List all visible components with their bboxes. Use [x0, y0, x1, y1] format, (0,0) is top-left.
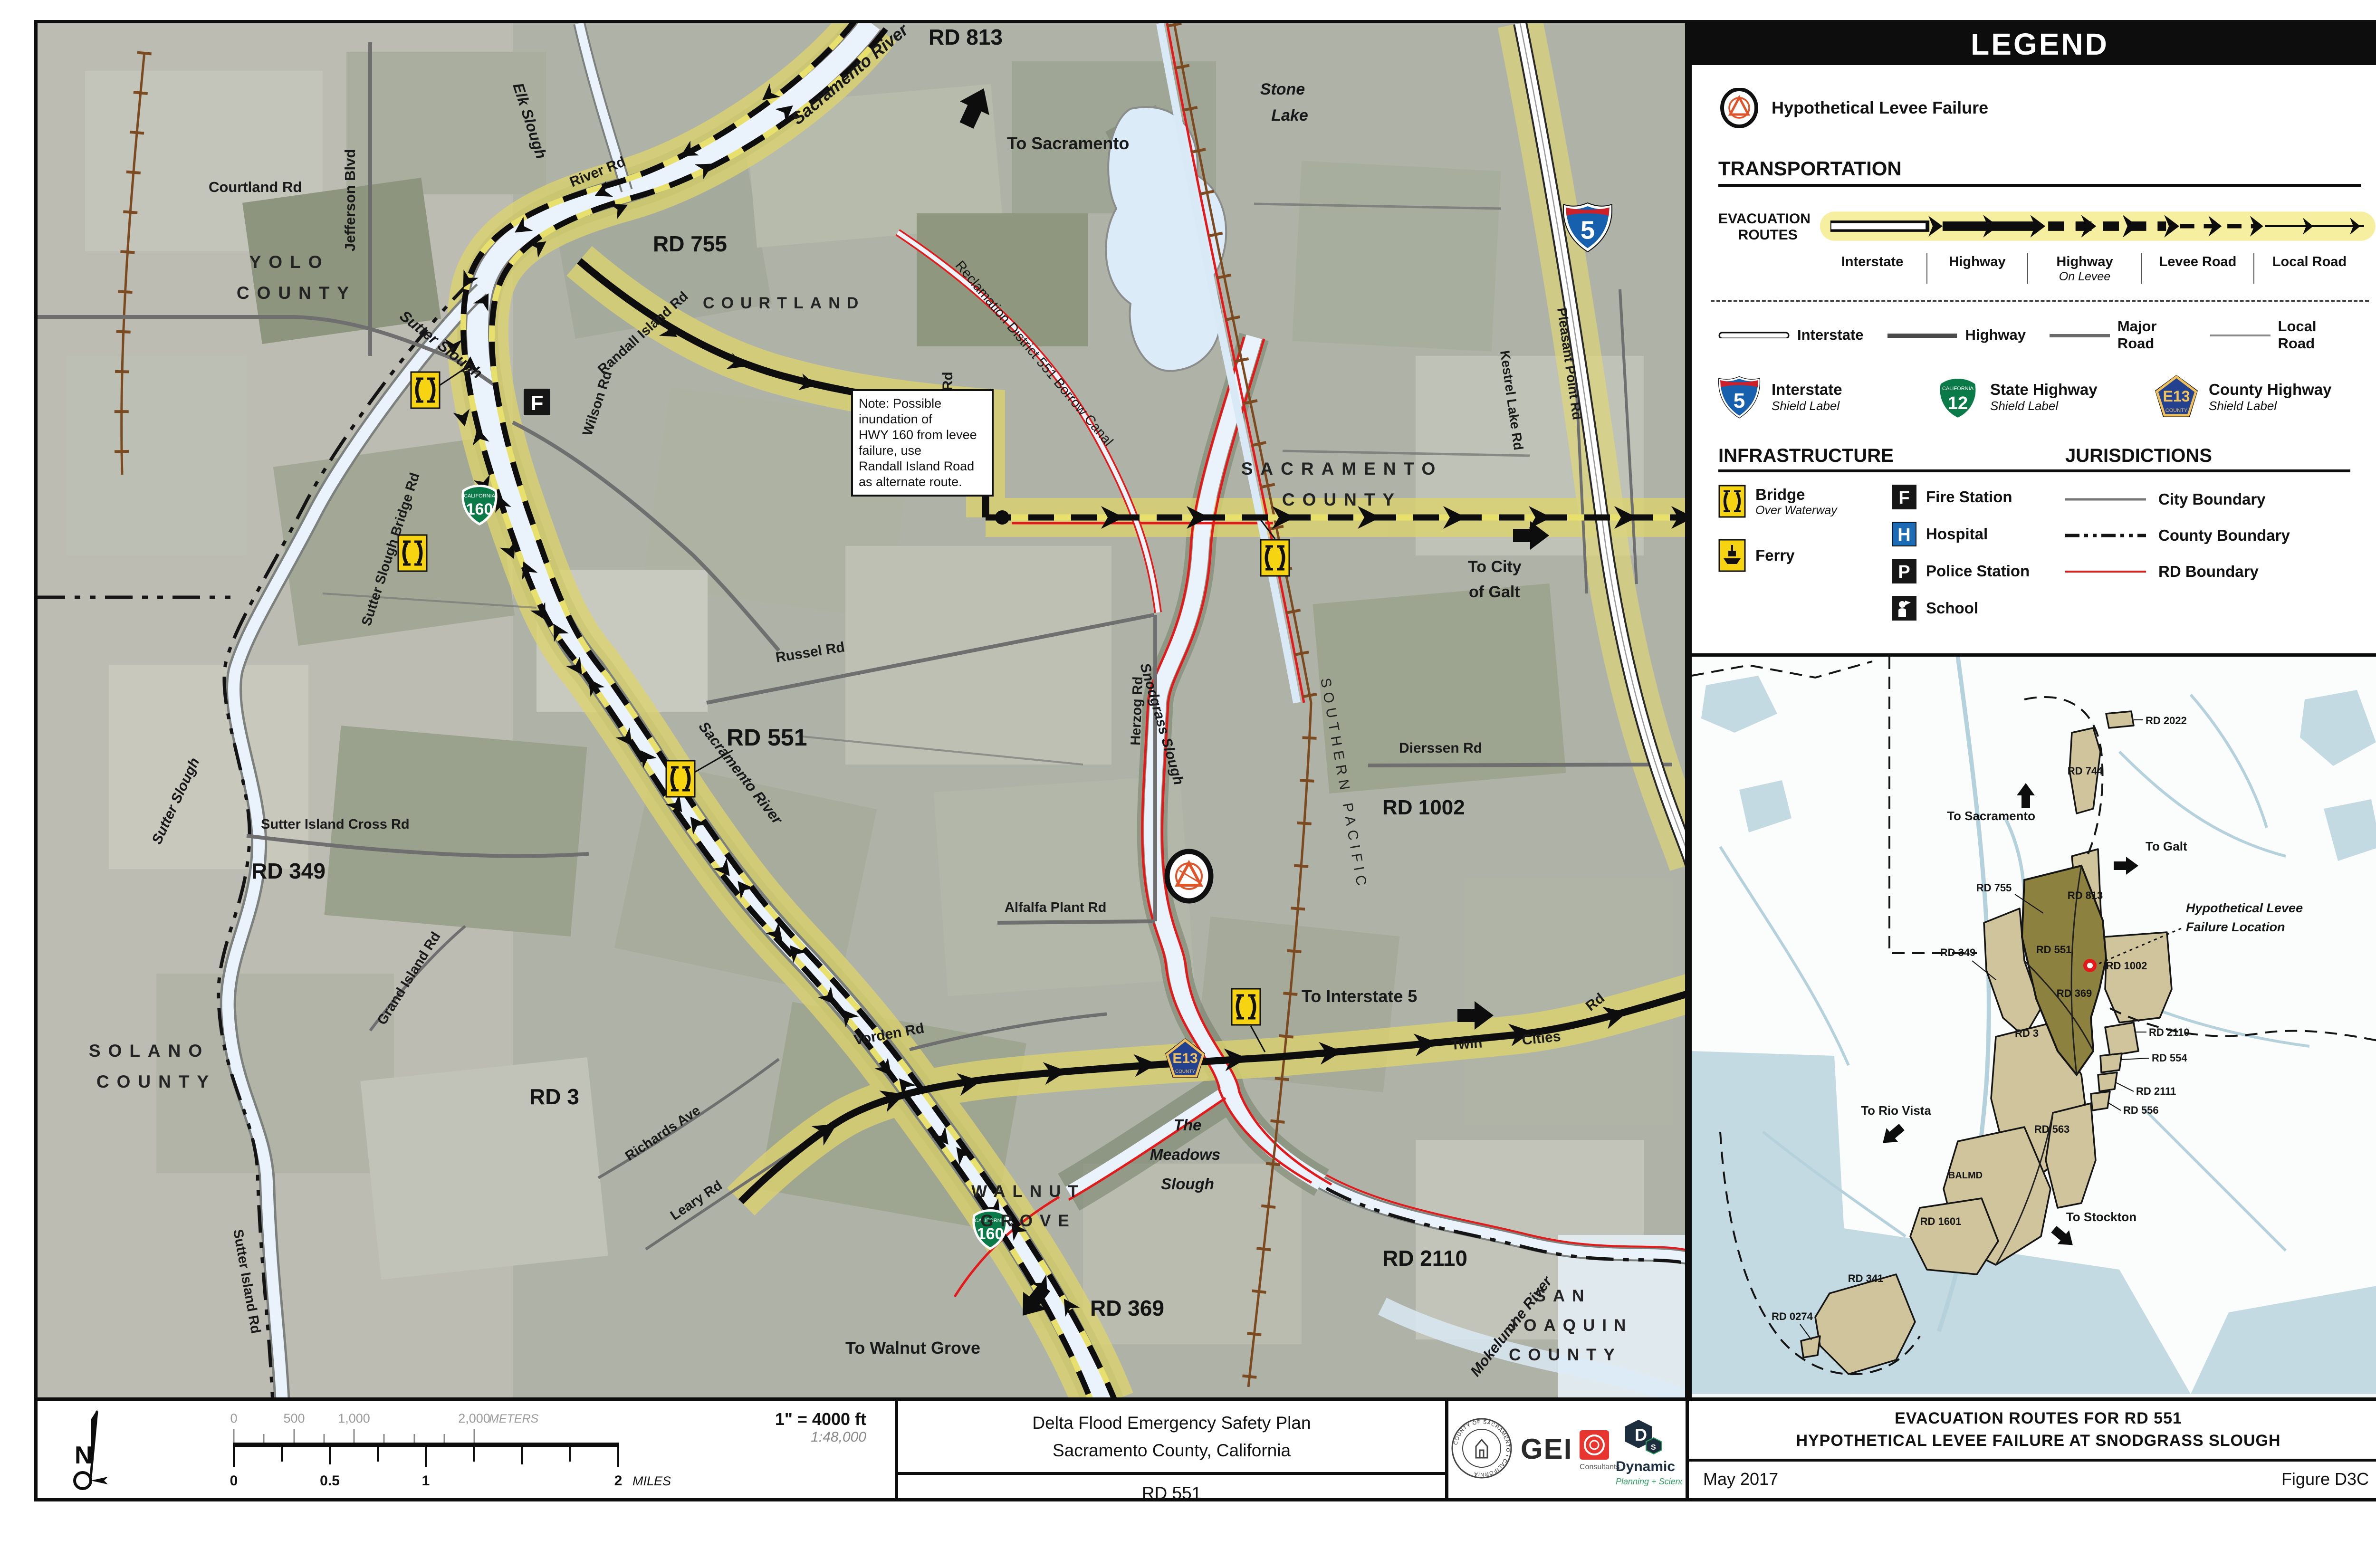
- svg-text:CALIFORNIA: CALIFORNIA: [464, 493, 496, 499]
- svg-text:RD 349: RD 349: [1940, 947, 1976, 958]
- fire-station-icon: F: [1892, 485, 1916, 509]
- svg-text:1: 1: [422, 1473, 430, 1489]
- bridge-icon: [1718, 485, 1746, 518]
- svg-text:RD 341: RD 341: [1848, 1272, 1884, 1284]
- svg-text:COUNTY: COUNTY: [1175, 1069, 1196, 1074]
- figure-title-line2: HYPOTHETICAL LEVEE FAILURE AT SNODGRASS …: [1689, 1432, 2376, 1450]
- label-courtland-town: COURTLAND: [703, 294, 865, 312]
- inset-rd-2022-poly: [2106, 711, 2134, 728]
- svg-text:COUNTY: COUNTY: [1509, 1346, 1622, 1364]
- label-courtland-rd: Courtland Rd: [209, 179, 302, 195]
- highway-line-sample: [1887, 332, 1958, 338]
- label-to-interstate-5: To Interstate 5: [1302, 986, 1417, 1006]
- svg-text:COUNTY OF SACRAMENTO • CALIF: COUNTY OF SACRAMENTO • CALIFORNIA: [1453, 1419, 1511, 1477]
- svg-text:To Stockton: To Stockton: [2066, 1210, 2136, 1224]
- footer-figure-panel: EVACUATION ROUTES FOR RD 551 HYPOTHETICA…: [1689, 1401, 2376, 1501]
- svg-text:F: F: [1898, 488, 1909, 508]
- svg-text:MILES: MILES: [632, 1474, 671, 1488]
- ferry-icon: [1718, 539, 1746, 572]
- footer: N 0 500 1,000 2,000 METERS: [34, 1401, 2376, 1501]
- interstate-shield-icon: 5: [1715, 373, 1763, 421]
- svg-text:RD 2110: RD 2110: [2149, 1026, 2190, 1038]
- svg-text:To Sacramento: To Sacramento: [1947, 809, 2035, 823]
- legend-evac-label: EVACUATION ROUTES: [1718, 211, 1817, 244]
- svg-text:RD 1002: RD 1002: [2106, 960, 2147, 972]
- figure-title-line1: EVACUATION ROUTES FOR RD 551: [1689, 1409, 2376, 1428]
- svg-text:GEI: GEI: [1521, 1433, 1572, 1465]
- legend-failure-label: Hypothetical Levee Failure: [1772, 98, 1988, 118]
- main-map-canvas: F 5: [38, 23, 1688, 1401]
- svg-text:P: P: [1898, 562, 1910, 582]
- figure-number: Figure D3C: [2281, 1469, 2369, 1489]
- svg-text:12: 12: [1948, 393, 1968, 413]
- svg-text:RD 369: RD 369: [2057, 987, 2092, 999]
- label-rd-755: RD 755: [653, 231, 727, 256]
- svg-text:0.5: 0.5: [320, 1473, 340, 1489]
- svg-text:of Galt: of Galt: [1469, 583, 1520, 601]
- svg-text:2: 2: [614, 1473, 623, 1489]
- label-san-joaquin-county: SAN: [1535, 1287, 1591, 1305]
- svg-text:E13: E13: [2163, 388, 2190, 405]
- svg-text:RD 755: RD 755: [1976, 882, 2012, 894]
- svg-text:COUNTY: COUNTY: [237, 283, 356, 303]
- inset-canvas: RD 2022 RD 744 To Sacramento To Galt RD …: [1692, 657, 2376, 1394]
- gei-logo: GEI Consultants: [1521, 1430, 1620, 1471]
- label-rd-1002: RD 1002: [1382, 796, 1465, 819]
- svg-text:RD 0274: RD 0274: [1772, 1310, 1813, 1322]
- label-to-sacramento: To Sacramento: [1007, 134, 1129, 153]
- levee-failure-icon: [1719, 88, 1759, 128]
- footer-scale-panel: N 0 500 1,000 2,000 METERS: [34, 1401, 898, 1501]
- label-dierssen-rd: Dierssen Rd: [1399, 740, 1482, 756]
- label-rd-3: RD 3: [529, 1084, 579, 1109]
- svg-text:N: N: [75, 1442, 93, 1469]
- label-walnut-grove: WALNUT: [971, 1182, 1085, 1201]
- label-to-walnut-grove: To Walnut Grove: [845, 1338, 980, 1358]
- label-meadows-slough: The: [1174, 1116, 1202, 1134]
- svg-text:RD 3: RD 3: [2015, 1027, 2039, 1039]
- svg-text:Meadows: Meadows: [1150, 1146, 1221, 1163]
- label-to-city-of-galt: To City: [1468, 558, 1522, 576]
- svg-text:BALMD: BALMD: [1948, 1170, 1983, 1181]
- label-twin-cities-rd: Twin: [1450, 1035, 1483, 1053]
- svg-text:E13: E13: [1172, 1051, 1198, 1066]
- sacramento-county-seal: COUNTY OF SACRAMENTO • CALIFORNIA: [1452, 1419, 1511, 1478]
- svg-text:RD 2111: RD 2111: [2136, 1085, 2176, 1097]
- svg-text:COUNTY: COUNTY: [96, 1072, 216, 1091]
- levee-failure-marker: [1167, 851, 1211, 901]
- svg-text:Consultants: Consultants: [1580, 1463, 1620, 1471]
- legend-infrastructure: INFRASTRUCTURE Bridge: [1718, 445, 2065, 621]
- legend-shields: 5 Interstate Shield Label CALIFORNIA 12 …: [1715, 373, 2376, 421]
- label-rd-369: RD 369: [1090, 1296, 1164, 1320]
- svg-text:500: 500: [283, 1411, 305, 1425]
- svg-text:Lake: Lake: [1271, 106, 1308, 124]
- north-arrow: N: [75, 1409, 108, 1489]
- legend-divider: [1711, 300, 2369, 302]
- scale-graphics: N 0 500 1,000 2,000 METERS: [38, 1401, 895, 1495]
- label-sacramento-county: SACRAMENTO: [1241, 459, 1443, 478]
- legend-evac-sublabels: Interstate Highway HighwayOn Levee Levee…: [1818, 253, 2365, 284]
- map-note: Note: Possible inundation of HWY 160 fro…: [851, 389, 994, 497]
- svg-text:GROVE: GROVE: [980, 1212, 1076, 1230]
- svg-text:METERS: METERS: [489, 1412, 539, 1425]
- scale-ratio: 1" = 4000 ft 1:48,000: [775, 1409, 866, 1445]
- bridge-icon: [398, 535, 427, 571]
- label-stone-lake: Stone: [1260, 80, 1305, 98]
- fire-station-icon: F: [524, 389, 550, 415]
- svg-text:RD 1601: RD 1601: [1920, 1215, 1962, 1227]
- svg-text:Planning + Science: Planning + Science: [1616, 1477, 1682, 1486]
- dynamic-logo: D S Dynamic Planning + Science: [1616, 1420, 1682, 1486]
- svg-text:COUNTY: COUNTY: [1282, 490, 1402, 509]
- svg-text:RD 744: RD 744: [2068, 765, 2103, 777]
- svg-text:160: 160: [466, 500, 493, 518]
- right-panel: LEGEND Hypothetical Levee Failure TRANSP…: [1688, 20, 2376, 1401]
- legend: LEGEND Hypothetical Levee Failure TRANSP…: [1692, 23, 2376, 657]
- label-rd-813: RD 813: [929, 25, 1003, 49]
- plan-subtitle: Sacramento County, California: [898, 1441, 1445, 1461]
- legend-jurisdictions: JURISDICTIONS City Boundary County Bound…: [2065, 445, 2350, 621]
- label-sutter-island-cross-rd: Sutter Island Cross Rd: [261, 817, 410, 832]
- svg-text:Failure Location: Failure Location: [2186, 920, 2285, 934]
- interstate-line-sample: [1718, 332, 1790, 338]
- label-solano-county: SOLANO: [89, 1041, 210, 1061]
- label-yolo-county: YOLO: [249, 252, 330, 272]
- rd-boundary-sample: [2065, 569, 2146, 574]
- svg-text:To Galt: To Galt: [2146, 839, 2187, 853]
- svg-text:CALIFORNIA: CALIFORNIA: [1942, 386, 1974, 392]
- plan-title: Delta Flood Emergency Safety Plan: [898, 1413, 1445, 1433]
- svg-text:5: 5: [1734, 389, 1745, 412]
- police-station-icon: P: [1892, 559, 1916, 583]
- label-rd-2110: RD 2110: [1382, 1246, 1467, 1271]
- svg-text:1,000: 1,000: [338, 1411, 370, 1425]
- state-highway-shield-icon: CALIFORNIA 12: [1934, 373, 1982, 421]
- inset-rd-1601-poly: [1910, 1198, 1998, 1274]
- city-boundary-sample: [2065, 497, 2146, 502]
- school-icon: [1892, 596, 1916, 621]
- inset-map: RD 2022 RD 744 To Sacramento To Galt RD …: [1692, 657, 2376, 1397]
- svg-text:Slough: Slough: [1161, 1175, 1214, 1193]
- local-road-line-sample: [2209, 332, 2271, 338]
- meters-scale-bar: 0 500 1,000 2,000 METERS: [230, 1411, 538, 1443]
- legend-road-classes: Interstate Highway Major Road Local Road: [1718, 318, 2369, 352]
- svg-text:0: 0: [230, 1411, 237, 1425]
- svg-text:RD 813: RD 813: [2068, 889, 2103, 901]
- footer-title-panel: Delta Flood Emergency Safety Plan Sacram…: [898, 1401, 1448, 1501]
- legend-transportation-heading: TRANSPORTATION: [1718, 157, 2361, 187]
- svg-text:5: 5: [1581, 216, 1595, 245]
- inset-failure-label: Hypothetical Levee: [2186, 901, 2303, 915]
- legend-evacuation-row: EVACUATION ROUTES: [1718, 201, 2376, 253]
- label-jefferson-blvd: Jefferson Blvd: [342, 149, 358, 251]
- svg-text:H: H: [1897, 525, 1910, 545]
- svg-text:2,000: 2,000: [458, 1411, 490, 1425]
- svg-text:S: S: [1651, 1444, 1656, 1452]
- ca-160-shield: CALIFORNIA 160: [463, 486, 496, 525]
- fire-station-letter: F: [531, 392, 544, 415]
- svg-text:COUNTY: COUNTY: [2165, 408, 2188, 413]
- svg-text:D: D: [1635, 1425, 1647, 1444]
- svg-text:Dynamic: Dynamic: [1616, 1459, 1675, 1474]
- miles-scale-bar: 0 0.5 1 2 MILES: [230, 1443, 671, 1489]
- legend-title: LEGEND: [1692, 23, 2376, 65]
- label-rd-349: RD 349: [251, 859, 326, 883]
- svg-text:0: 0: [230, 1473, 238, 1489]
- map-date: May 2017: [1703, 1469, 1778, 1489]
- map-sheet: F 5: [0, 0, 2376, 1568]
- sheet-name: RD 551: [898, 1483, 1445, 1503]
- inset-rd-554-poly: [2100, 1053, 2122, 1072]
- svg-text:To Rio Vista: To Rio Vista: [1861, 1103, 1931, 1118]
- aerial-field-patches: [38, 23, 1688, 1401]
- inset-rd-2110-poly: [2105, 1023, 2138, 1056]
- legend-failure-row: Hypothetical Levee Failure: [1719, 88, 2376, 128]
- inset-rd-2111-poly: [2098, 1072, 2117, 1091]
- svg-text:RD 554: RD 554: [2152, 1052, 2187, 1064]
- label-rd-551: RD 551: [727, 724, 807, 751]
- svg-text:RD 2022: RD 2022: [2146, 715, 2187, 727]
- legend-columns: INFRASTRUCTURE Bridge: [1718, 445, 2369, 621]
- inset-rd-556-poly: [2091, 1091, 2110, 1110]
- svg-text:JOAQUIN: JOAQUIN: [1507, 1316, 1633, 1335]
- legend-evac-graphic: [1817, 201, 2376, 253]
- major-road-line-sample: [2049, 332, 2110, 338]
- svg-text:RD 551: RD 551: [2036, 944, 2072, 956]
- county-boundary-sample: [2065, 533, 2146, 538]
- county-highway-shield-icon: E13 COUNTY: [2153, 373, 2200, 421]
- svg-text:RD 563: RD 563: [2034, 1123, 2070, 1135]
- footer-logos-panel: COUNTY OF SACRAMENTO • CALIFORNIA GEI Co…: [1448, 1401, 1689, 1501]
- hospital-icon: H: [1892, 522, 1916, 546]
- svg-text:RD 556: RD 556: [2123, 1104, 2159, 1116]
- label-alfalfa-plant-rd: Alfalfa Plant Rd: [1005, 900, 1106, 915]
- logos: COUNTY OF SACRAMENTO • CALIFORNIA GEI Co…: [1448, 1401, 1682, 1495]
- main-map: F 5: [34, 20, 1688, 1401]
